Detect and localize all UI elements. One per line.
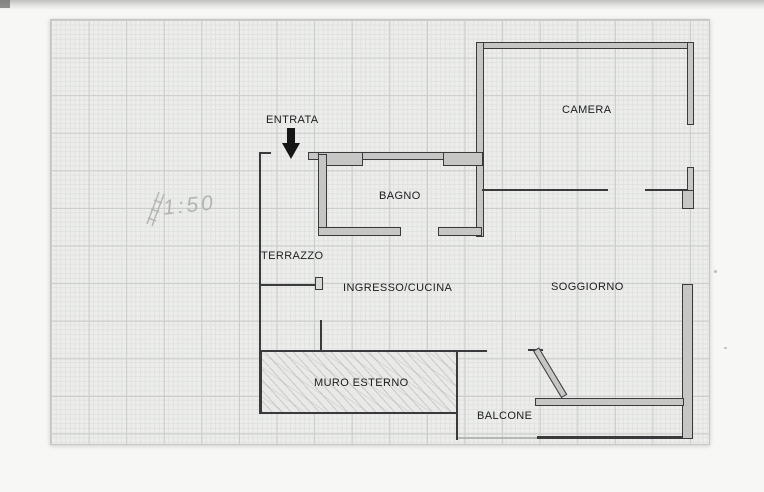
terrazzo-door-post [315, 277, 323, 290]
room-label-bagno: BAGNO [379, 190, 421, 202]
room-label-muro-esterno: MURO ESTERNO [314, 377, 409, 389]
wall-main-vertical [476, 42, 484, 237]
floor-plan-scan: 1:50 ENTRATA CAMERA BAGNO TERRAZZO INGRE… [0, 0, 764, 492]
entrance-jamb-tick [259, 152, 271, 154]
dust-speck [724, 347, 727, 349]
scan-top-edge [0, 0, 764, 10]
partition-camera-soggiorno-left [482, 189, 608, 191]
wall-west-outline [259, 152, 261, 414]
wall-camera-right [687, 42, 694, 125]
entrance-arrow-icon [287, 128, 295, 144]
balcone-edge-pencil [458, 437, 538, 439]
scan-corner-mark [0, 0, 10, 8]
label-entrata: ENTRATA [266, 114, 319, 126]
wall-south-ingresso [260, 350, 487, 352]
partition-camera-soggiorno-right [645, 189, 687, 191]
partition-stub-vertical [320, 320, 322, 351]
wall-bagno-bottom-right [438, 227, 482, 236]
room-label-terrazzo: TERRAZZO [261, 250, 323, 262]
entrance-arrow-head-icon [282, 143, 300, 159]
dust-speck [714, 270, 717, 273]
wall-bagno-top-thick-right [443, 152, 483, 166]
wall-balcone-west [456, 350, 458, 440]
wall-camera-top [478, 42, 694, 49]
wall-bagno-bottom-left [318, 227, 401, 236]
wall-east-pier-lower [682, 190, 694, 209]
wall-soggiorno-south [535, 398, 684, 406]
partition-terrazzo [260, 284, 316, 286]
wall-bagno-left [318, 154, 327, 235]
room-label-camera: CAMERA [562, 104, 611, 116]
balcone-edge-south [537, 436, 683, 439]
room-label-soggiorno: SOGGIORNO [551, 281, 624, 293]
room-label-ingresso-cucina: INGRESSO/CUCINA [343, 282, 452, 294]
wall-soggiorno-east [682, 284, 693, 439]
room-label-balcone: BALCONE [477, 410, 532, 422]
